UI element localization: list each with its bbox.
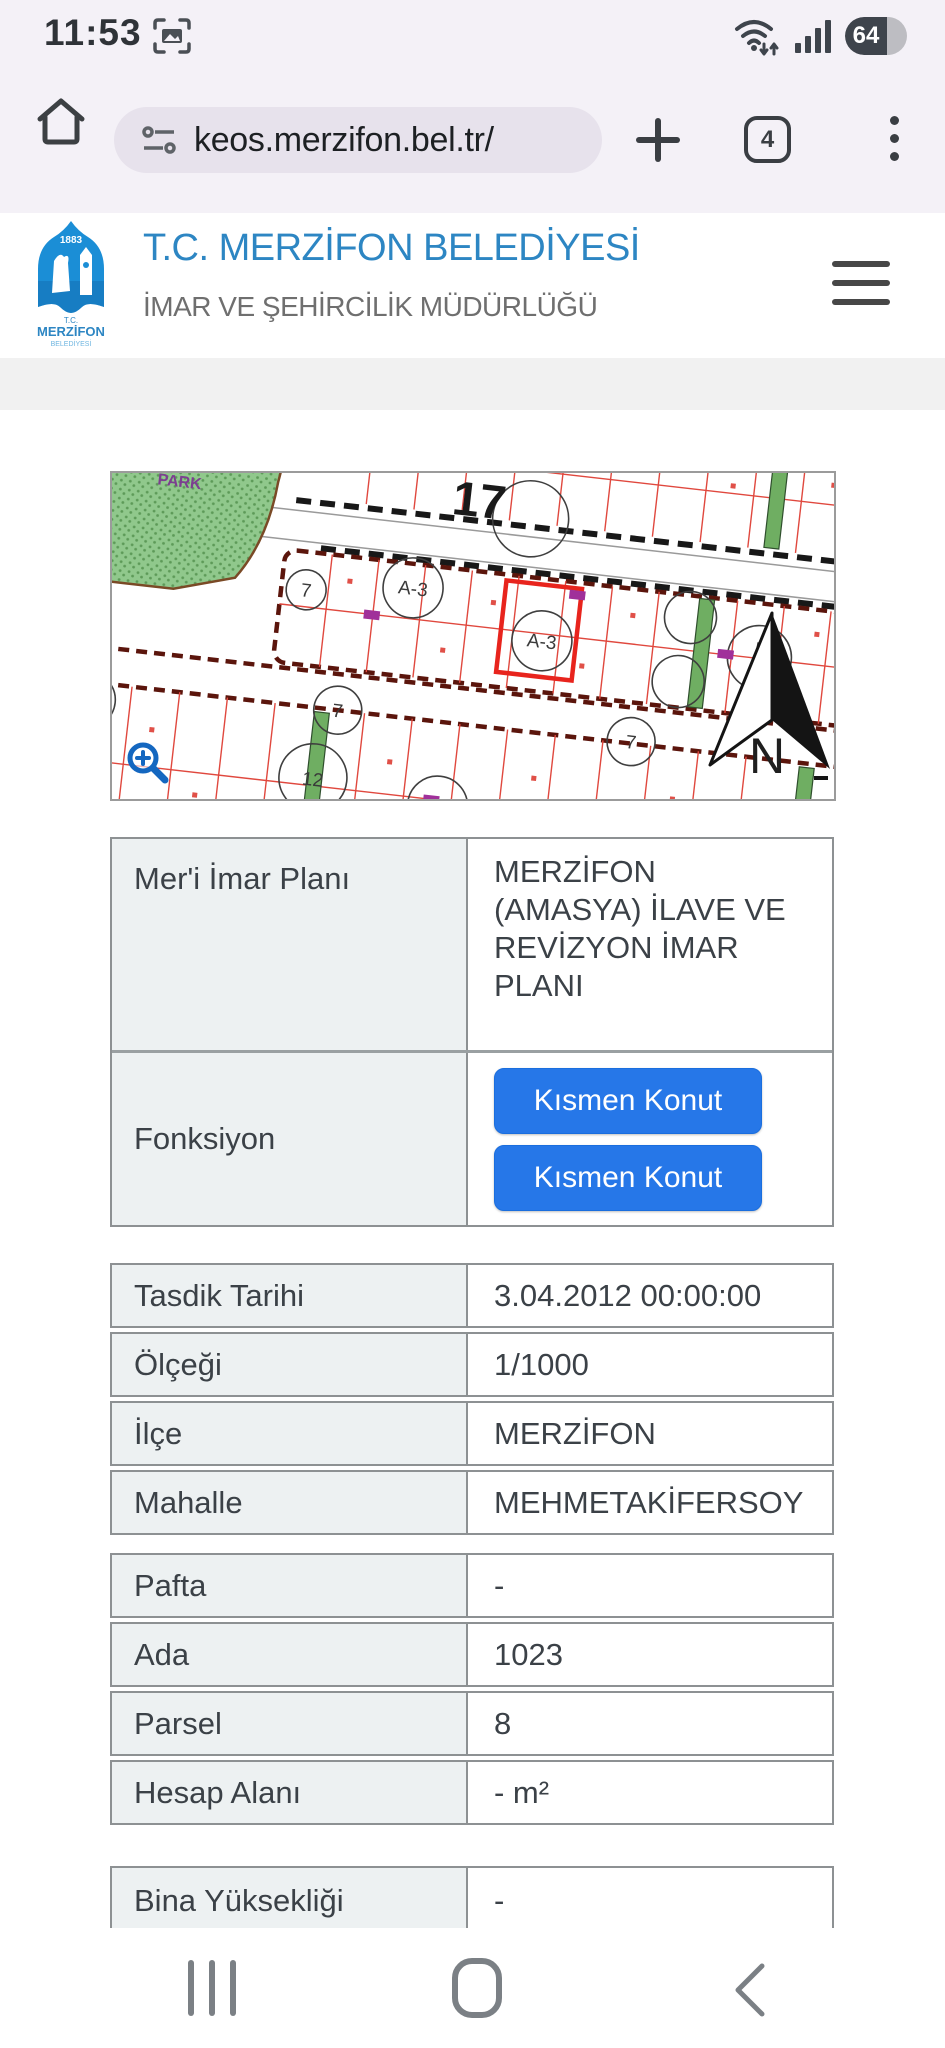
url-text[interactable]: keos.merzifon.bel.tr/ bbox=[194, 121, 494, 160]
row-label: Ada bbox=[112, 1624, 468, 1685]
row-value: 1/1000 bbox=[468, 1334, 832, 1395]
parcel-circle-label: A-3 bbox=[397, 577, 429, 601]
clock: 11:53 bbox=[44, 12, 142, 54]
row-label: İlçe bbox=[112, 1403, 468, 1464]
map-zoom-button[interactable] bbox=[126, 741, 170, 785]
tab-count: 4 bbox=[761, 126, 774, 154]
table-row: İlçe MERZİFON bbox=[110, 1401, 834, 1466]
table-row: Mer'i İmar Planı MERZİFON (AMASYA) İLAVE… bbox=[112, 839, 832, 1053]
row-label: Tasdik Tarihi bbox=[112, 1265, 468, 1326]
tab-switcher-button[interactable]: 4 bbox=[744, 116, 791, 163]
recents-button[interactable] bbox=[188, 1960, 236, 2016]
north-label: N bbox=[749, 728, 785, 784]
battery-indicator: 64 bbox=[845, 17, 907, 55]
row-value: MERZİFON bbox=[468, 1403, 832, 1464]
row-value: MERZİFON (AMASYA) İLAVE VE REVİZYON İMAR… bbox=[468, 839, 832, 1050]
back-button[interactable] bbox=[732, 1960, 768, 2020]
phone-screen: 11:53 bbox=[0, 0, 945, 2048]
row-label: Mahalle bbox=[112, 1472, 468, 1533]
row-value: Kısmen Konut Kısmen Konut bbox=[468, 1053, 832, 1225]
table-row: Parsel 8 bbox=[110, 1691, 834, 1756]
parcel-circle-label: 12 bbox=[301, 769, 324, 792]
row-label: Mer'i İmar Planı bbox=[112, 839, 468, 1050]
detail-table: Tasdik Tarihi 3.04.2012 00:00:00 Ölçeği … bbox=[110, 1263, 834, 1539]
table-row: Mahalle MEHMETAKİFERSOY bbox=[110, 1470, 834, 1535]
row-label: Fonksiyon bbox=[112, 1053, 468, 1225]
function-button[interactable]: Kısmen Konut bbox=[494, 1145, 762, 1211]
site-info-icon[interactable] bbox=[142, 125, 176, 155]
logo-name: MERZİFON bbox=[37, 324, 105, 339]
home-button[interactable] bbox=[452, 1958, 502, 2018]
row-label: Ölçeği bbox=[112, 1334, 468, 1395]
row-value: 8 bbox=[468, 1693, 832, 1754]
table-row: Ölçeği 1/1000 bbox=[110, 1332, 834, 1397]
table-row: Tasdik Tarihi 3.04.2012 00:00:00 bbox=[110, 1263, 834, 1328]
screenshot-icon bbox=[152, 17, 192, 55]
row-label: Bina Yüksekliği bbox=[112, 1868, 468, 1928]
row-value: 1023 bbox=[468, 1624, 832, 1685]
menu-toggle-button[interactable] bbox=[832, 261, 890, 318]
signal-icon bbox=[795, 17, 831, 55]
site-title[interactable]: T.C. MERZİFON BELEDİYESİ bbox=[143, 227, 640, 270]
zoning-map-image: PARK bbox=[112, 473, 834, 799]
site-header: 1883 T.C. MERZİFON BELEDİYESİ T.C. MERZİ… bbox=[0, 213, 945, 358]
block-number-label: 17 bbox=[450, 473, 509, 531]
municipality-logo: 1883 T.C. MERZİFON BELEDİYESİ bbox=[28, 221, 114, 349]
row-value: - bbox=[468, 1868, 832, 1928]
function-button[interactable]: Kısmen Konut bbox=[494, 1068, 762, 1134]
plan-table: Mer'i İmar Planı MERZİFON (AMASYA) İLAVE… bbox=[110, 837, 834, 1227]
logo-sub: BELEDİYESİ bbox=[51, 339, 92, 348]
table-row: Bina Yüksekliği - bbox=[110, 1866, 834, 1928]
row-label: Pafta bbox=[112, 1555, 468, 1616]
battery-percent: 64 bbox=[845, 17, 887, 55]
wifi-icon bbox=[733, 16, 781, 56]
address-bar[interactable]: keos.merzifon.bel.tr/ bbox=[114, 107, 602, 173]
building-table: Bina Yüksekliği - bbox=[110, 1866, 834, 1928]
site-subtitle: İMAR VE ŞEHİRCİLİK MÜDÜRLÜĞÜ bbox=[143, 291, 597, 323]
browser-home-button[interactable] bbox=[34, 95, 88, 147]
android-nav-bar bbox=[0, 1928, 945, 2048]
browser-menu-button[interactable] bbox=[890, 116, 900, 164]
new-tab-button[interactable] bbox=[636, 118, 680, 162]
parcel-circle-label: A-3 bbox=[526, 630, 558, 654]
table-row: Hesap Alanı - m² bbox=[110, 1760, 834, 1825]
parcel-table: Pafta - Ada 1023 Parsel 8 Hesap Alanı - … bbox=[110, 1553, 834, 1829]
row-label: Parsel bbox=[112, 1693, 468, 1754]
row-value: - m² bbox=[468, 1762, 832, 1823]
table-row: Fonksiyon Kısmen Konut Kısmen Konut bbox=[112, 1053, 832, 1225]
row-label: Hesap Alanı bbox=[112, 1762, 468, 1823]
row-value: - bbox=[468, 1555, 832, 1616]
logo-year: 1883 bbox=[60, 235, 83, 246]
table-row: Ada 1023 bbox=[110, 1622, 834, 1687]
header-divider-band bbox=[0, 358, 945, 410]
row-value: 3.04.2012 00:00:00 bbox=[468, 1265, 832, 1326]
table-row: Pafta - bbox=[110, 1553, 834, 1618]
status-icons: 64 bbox=[733, 16, 907, 56]
zoning-map[interactable]: PARK bbox=[110, 471, 836, 801]
row-value: MEHMETAKİFERSOY bbox=[468, 1472, 832, 1533]
